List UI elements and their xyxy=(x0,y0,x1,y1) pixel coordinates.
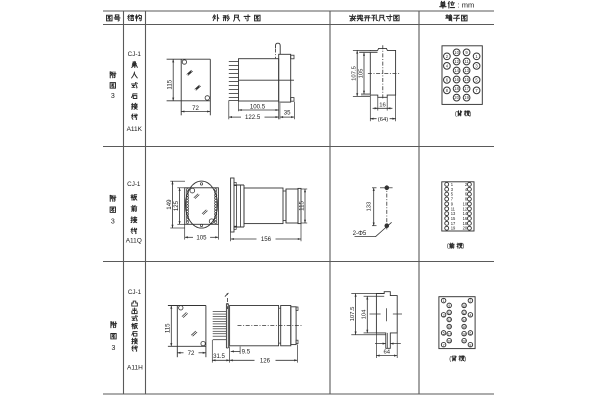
svg-text:15: 15 xyxy=(447,325,451,329)
svg-text::: : xyxy=(457,0,459,9)
svg-text:): ) xyxy=(469,111,471,117)
svg-text:9: 9 xyxy=(448,304,450,308)
svg-text:16: 16 xyxy=(379,102,386,108)
svg-text:72: 72 xyxy=(192,105,199,112)
svg-text:14: 14 xyxy=(454,68,459,73)
svg-text:(: ( xyxy=(447,244,449,250)
svg-text:13: 13 xyxy=(464,68,469,73)
svg-text:16: 16 xyxy=(462,325,466,329)
svg-text:CJ-1: CJ-1 xyxy=(128,51,142,58)
svg-text:105: 105 xyxy=(359,68,365,79)
svg-text:14: 14 xyxy=(462,318,466,322)
svg-text:115: 115 xyxy=(165,323,172,333)
svg-text:20: 20 xyxy=(463,226,468,231)
svg-text:1: 1 xyxy=(443,299,445,303)
svg-text:13: 13 xyxy=(447,318,451,322)
svg-text:18: 18 xyxy=(462,332,466,336)
svg-text:107.5: 107.5 xyxy=(350,306,356,321)
svg-text:CJ-1: CJ-1 xyxy=(128,289,142,296)
svg-text:(: ( xyxy=(455,111,457,117)
svg-text:10: 10 xyxy=(462,304,466,308)
svg-text:7: 7 xyxy=(443,343,445,347)
svg-text:A11H: A11H xyxy=(127,364,143,371)
svg-text:): ) xyxy=(462,244,464,250)
svg-text:CJ-1: CJ-1 xyxy=(127,181,141,188)
svg-text:126: 126 xyxy=(260,357,271,364)
svg-text:17: 17 xyxy=(464,86,469,91)
svg-text:19: 19 xyxy=(451,226,456,231)
svg-text:125: 125 xyxy=(173,200,180,211)
svg-text:104: 104 xyxy=(362,309,368,320)
svg-text:19: 19 xyxy=(464,95,469,100)
svg-text:72: 72 xyxy=(188,350,195,357)
svg-text:17: 17 xyxy=(447,332,451,336)
svg-text:11: 11 xyxy=(464,59,469,64)
svg-text:105: 105 xyxy=(196,234,207,241)
svg-text:3: 3 xyxy=(111,219,115,226)
svg-text:107.5: 107.5 xyxy=(352,65,358,80)
svg-text:mm: mm xyxy=(462,0,475,9)
svg-text:(64): (64) xyxy=(378,117,389,123)
svg-text:122.5: 122.5 xyxy=(245,114,261,121)
svg-text:8: 8 xyxy=(469,343,471,347)
svg-text:12: 12 xyxy=(462,311,466,315)
svg-text:20: 20 xyxy=(462,339,466,343)
svg-text:100.5: 100.5 xyxy=(250,103,266,110)
svg-text:3: 3 xyxy=(112,345,116,352)
svg-text:A11Q: A11Q xyxy=(126,237,142,244)
svg-text:31.5: 31.5 xyxy=(213,353,225,360)
svg-text:5: 5 xyxy=(443,332,445,336)
svg-text:2-Φ5: 2-Φ5 xyxy=(353,230,367,237)
svg-text:133: 133 xyxy=(366,201,372,212)
svg-text:18: 18 xyxy=(454,86,459,91)
svg-text:15: 15 xyxy=(464,77,469,82)
svg-text:19: 19 xyxy=(447,339,451,343)
svg-text:4: 4 xyxy=(469,313,471,317)
svg-text:115: 115 xyxy=(167,79,174,89)
svg-text:6: 6 xyxy=(469,332,471,336)
svg-text:3: 3 xyxy=(443,313,445,317)
svg-text:20: 20 xyxy=(454,95,459,100)
svg-text:3: 3 xyxy=(111,93,115,100)
svg-text:16: 16 xyxy=(454,77,459,82)
svg-text:35: 35 xyxy=(284,110,291,117)
svg-text:115: 115 xyxy=(298,201,305,211)
svg-text:10: 10 xyxy=(454,50,459,55)
svg-text:): ) xyxy=(464,356,466,362)
svg-text:149: 149 xyxy=(166,199,173,210)
svg-text:12: 12 xyxy=(454,59,459,64)
svg-text:(: ( xyxy=(449,356,451,362)
svg-text:A11K: A11K xyxy=(127,126,143,133)
svg-text:64: 64 xyxy=(384,350,391,356)
svg-text:11: 11 xyxy=(447,311,451,315)
svg-text:156: 156 xyxy=(261,236,272,243)
svg-text:2: 2 xyxy=(469,299,471,303)
svg-text:9.5: 9.5 xyxy=(242,348,251,355)
